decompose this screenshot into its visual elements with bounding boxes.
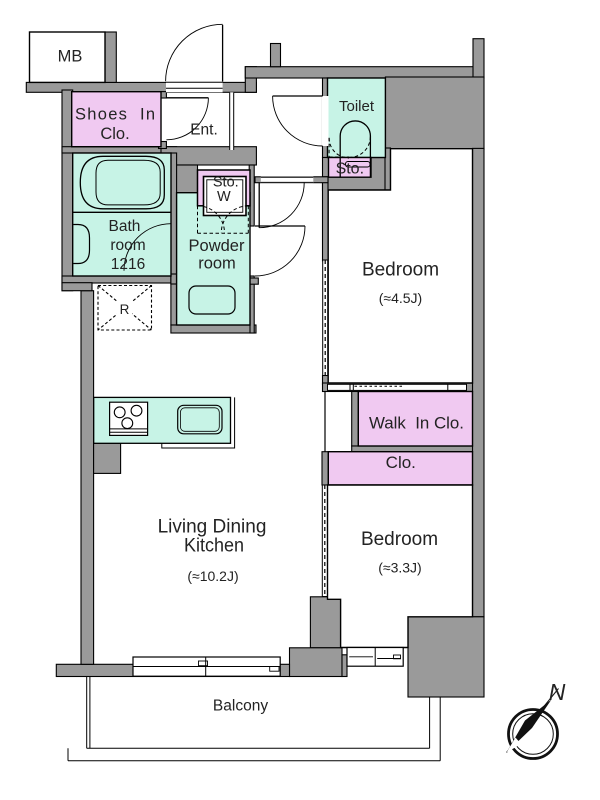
svg-text:Kitchen: Kitchen (184, 535, 244, 556)
svg-text:(≈3.3J): (≈3.3J) (378, 560, 421, 576)
svg-text:(≈4.5J): (≈4.5J) (379, 290, 422, 306)
svg-text:Clo.: Clo. (100, 125, 129, 143)
svg-text:Clo.: Clo. (386, 453, 416, 472)
svg-text:1216: 1216 (111, 256, 145, 273)
svg-text:room: room (110, 237, 145, 254)
svg-text:(≈10.2J): (≈10.2J) (187, 568, 238, 584)
svg-text:MB: MB (58, 48, 83, 66)
svg-text:Sto.: Sto. (336, 161, 364, 178)
svg-text:Shoes In: Shoes In (75, 106, 155, 124)
svg-text:Toilet: Toilet (339, 98, 375, 115)
svg-text:Bath: Bath (109, 218, 141, 235)
svg-text:room: room (198, 255, 236, 273)
svg-text:W: W (217, 189, 231, 205)
svg-text:Ent.: Ent. (190, 122, 218, 139)
svg-text:Walk In Clo.: Walk In Clo. (369, 414, 464, 432)
svg-text:N: N (549, 679, 566, 705)
svg-text:R: R (120, 302, 130, 317)
svg-text:Powder: Powder (189, 237, 245, 255)
svg-text:Bedroom: Bedroom (361, 529, 438, 550)
svg-text:Bedroom: Bedroom (362, 260, 439, 281)
svg-text:Balcony: Balcony (213, 698, 268, 715)
